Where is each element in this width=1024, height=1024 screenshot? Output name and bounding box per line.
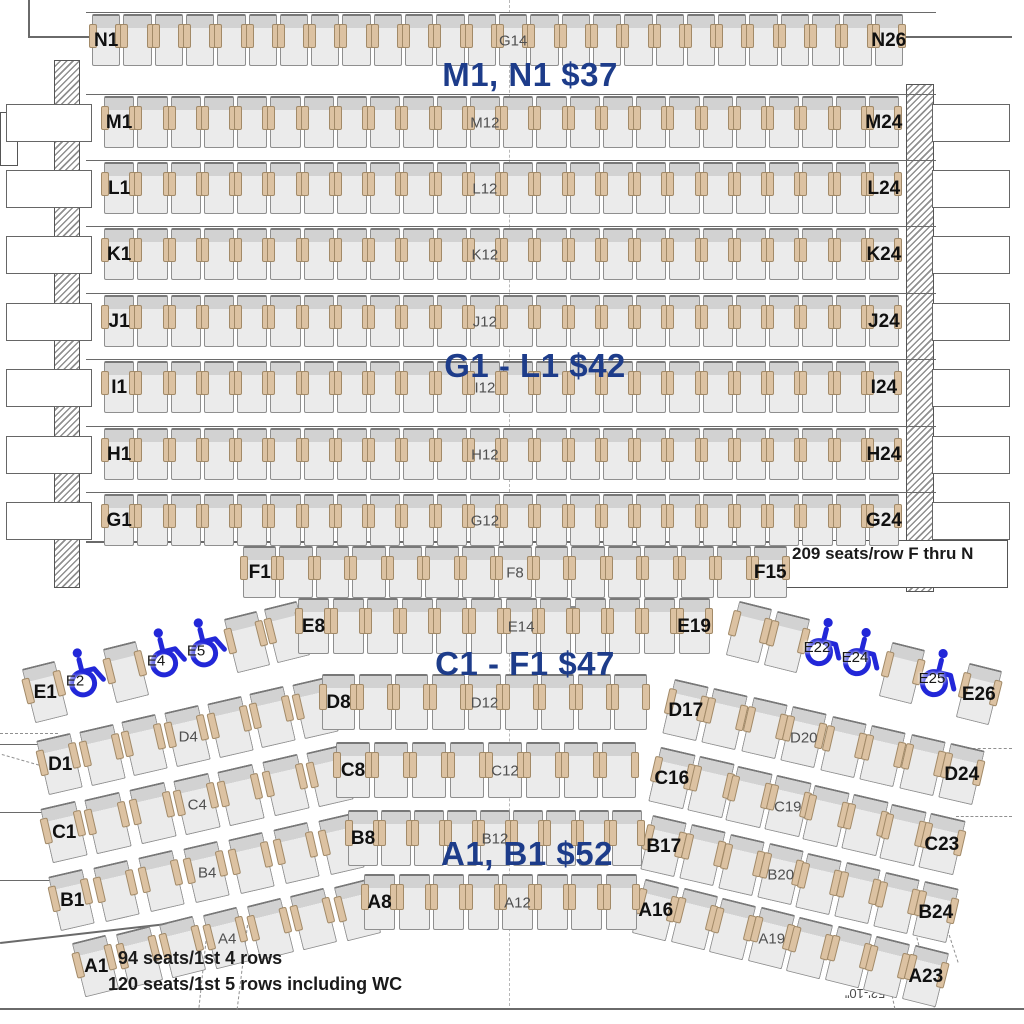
seat-G-17[interactable]: [636, 494, 666, 546]
seat-J-22[interactable]: [802, 295, 832, 347]
seat-C12[interactable]: C12: [488, 742, 522, 798]
seat-G-15[interactable]: [570, 494, 600, 546]
seat-L-9[interactable]: [370, 162, 400, 214]
seat-N-4[interactable]: [186, 14, 214, 66]
seat-M-23[interactable]: [836, 96, 866, 148]
seat-K-15[interactable]: [570, 228, 600, 280]
seat-I-23[interactable]: [836, 361, 866, 413]
seat-J-15[interactable]: [570, 295, 600, 347]
seat-K-3[interactable]: [171, 228, 201, 280]
seat-K-7[interactable]: [304, 228, 334, 280]
seat-M-14[interactable]: [536, 96, 566, 148]
seat-G1[interactable]: G1: [104, 494, 134, 546]
architecture-line: [86, 12, 936, 13]
seat-label: E26: [962, 683, 996, 705]
seat-N-18[interactable]: [624, 14, 652, 66]
wheelchair-space-label: E25: [918, 669, 945, 686]
seat-A-c-3[interactable]: [433, 874, 464, 930]
seat-label: I24: [871, 377, 897, 399]
seat-F-7[interactable]: [462, 546, 495, 598]
seat-B-c-3[interactable]: [414, 810, 444, 866]
seat-C-side-2[interactable]: [84, 791, 132, 854]
seat-G-9[interactable]: [370, 494, 400, 546]
seat-J-7[interactable]: [304, 295, 334, 347]
seat-C8[interactable]: C8: [336, 742, 370, 798]
seat-J-3[interactable]: [171, 295, 201, 347]
seat-H-15[interactable]: [570, 428, 600, 480]
seat-F-12[interactable]: [644, 546, 677, 598]
seat-K-21[interactable]: [769, 228, 799, 280]
seat-N-11[interactable]: [405, 14, 433, 66]
seat-H-10[interactable]: [403, 428, 433, 480]
seat-B-side-5[interactable]: [796, 852, 843, 914]
seat-B-c-2[interactable]: [381, 810, 411, 866]
seat-J-17[interactable]: [636, 295, 666, 347]
seat-label: A23: [908, 965, 943, 987]
seat-L-21[interactable]: [769, 162, 799, 214]
seat-K-20[interactable]: [736, 228, 766, 280]
seat-label: B17: [646, 835, 681, 857]
seat-M-6[interactable]: [270, 96, 300, 148]
seat-D-c-9[interactable]: [614, 674, 647, 730]
seat-J-11[interactable]: [437, 295, 467, 347]
seat-I-4[interactable]: [204, 361, 234, 413]
seat-N-19[interactable]: [656, 14, 684, 66]
seat-E19[interactable]: E19: [679, 598, 710, 654]
wheelchair-space-label: E2: [66, 672, 84, 689]
seat-D-c-2[interactable]: [359, 674, 392, 730]
seat-N-6[interactable]: [249, 14, 277, 66]
seat-K-4[interactable]: [204, 228, 234, 280]
seat-K-10[interactable]: [403, 228, 433, 280]
seat-K-5[interactable]: [237, 228, 267, 280]
seat-D24[interactable]: D24: [938, 743, 985, 805]
seat-K24[interactable]: K24: [869, 228, 899, 280]
note-120-seats: 120 seats/1st 5 rows including WC: [108, 974, 402, 995]
architecture-line: [86, 492, 936, 493]
seat-M-4[interactable]: [204, 96, 234, 148]
seat-M-19[interactable]: [703, 96, 733, 148]
seat-D-side-6[interactable]: [249, 686, 296, 748]
seat-D20[interactable]: D20: [780, 706, 827, 768]
seat-L1[interactable]: L1: [104, 162, 134, 214]
left-aisle-platform-row-G: [6, 502, 92, 540]
seat-B-side-2[interactable]: [93, 859, 140, 921]
seat-G-14[interactable]: [536, 494, 566, 546]
seat-B17[interactable]: B17: [640, 815, 687, 877]
seat-M-15[interactable]: [570, 96, 600, 148]
seat-K-2[interactable]: [137, 228, 167, 280]
seat-label: D24: [944, 763, 979, 785]
seat-A-side-6[interactable]: [290, 888, 338, 951]
seat-L-10[interactable]: [403, 162, 433, 214]
seat-H-17[interactable]: [636, 428, 666, 480]
price-label-rows-c-f: C1 - F1 $47: [435, 645, 615, 683]
seat-L-15[interactable]: [570, 162, 600, 214]
seat-F-9[interactable]: [535, 546, 568, 598]
seat-K-9[interactable]: [370, 228, 400, 280]
seat-F-11[interactable]: [608, 546, 641, 598]
seat-H-19[interactable]: [703, 428, 733, 480]
seat-L-4[interactable]: [204, 162, 234, 214]
seat-M-16[interactable]: [603, 96, 633, 148]
seat-label: C16: [654, 767, 689, 789]
seat-B1[interactable]: B1: [48, 869, 95, 931]
seat-D-side-7[interactable]: [899, 734, 946, 796]
seat-A8[interactable]: A8: [364, 874, 395, 930]
seat-M-21[interactable]: [769, 96, 799, 148]
seat-L-14[interactable]: [536, 162, 566, 214]
seat-K-16[interactable]: [603, 228, 633, 280]
seat-I-7[interactable]: [304, 361, 334, 413]
seat-M-5[interactable]: [237, 96, 267, 148]
seat-M-11[interactable]: [437, 96, 467, 148]
seat-K-11[interactable]: [437, 228, 467, 280]
seat-L-6[interactable]: [270, 162, 300, 214]
seat-D17[interactable]: D17: [662, 679, 709, 741]
seat-L-8[interactable]: [337, 162, 367, 214]
seat-B-c-9[interactable]: [612, 810, 642, 866]
architecture-line: [28, 0, 30, 38]
seat-K1[interactable]: K1: [104, 228, 134, 280]
seat-L-22[interactable]: [802, 162, 832, 214]
seat-J-21[interactable]: [769, 295, 799, 347]
seat-L24[interactable]: L24: [869, 162, 899, 214]
seat-J-14[interactable]: [536, 295, 566, 347]
seat-H-8[interactable]: [337, 428, 367, 480]
seat-E-c-3[interactable]: [367, 598, 398, 654]
seat-I-18[interactable]: [669, 361, 699, 413]
seat-H12[interactable]: H12: [470, 428, 500, 480]
seat-A-c-4[interactable]: [468, 874, 499, 930]
seat-J-8[interactable]: [337, 295, 367, 347]
seat-M-13[interactable]: [503, 96, 533, 148]
seat-B-side-6[interactable]: [273, 822, 320, 884]
seat-D4[interactable]: D4: [164, 705, 211, 767]
seat-H-23[interactable]: [836, 428, 866, 480]
seat-F15[interactable]: F15: [754, 546, 787, 598]
seat-G-2[interactable]: [137, 494, 167, 546]
seat-K12[interactable]: K12: [470, 228, 500, 280]
seat-I-8[interactable]: [337, 361, 367, 413]
seat-A-c-7[interactable]: [571, 874, 602, 930]
seat-J-2[interactable]: [137, 295, 167, 347]
seat-N-7[interactable]: [280, 14, 308, 66]
seat-F8[interactable]: F8: [498, 546, 531, 598]
seat-H-21[interactable]: [769, 428, 799, 480]
seat-G-10[interactable]: [403, 494, 433, 546]
seat-label: E14: [508, 618, 535, 635]
seat-label: N1: [94, 30, 118, 52]
seat-K-18[interactable]: [669, 228, 699, 280]
seat-H-6[interactable]: [270, 428, 300, 480]
left-aisle-platform-row-H: [6, 436, 92, 474]
seat-F-5[interactable]: [389, 546, 422, 598]
seat-M-3[interactable]: [171, 96, 201, 148]
seat-N-24[interactable]: [812, 14, 840, 66]
seat-G-20[interactable]: [736, 494, 766, 546]
seat-M-20[interactable]: [736, 96, 766, 148]
seat-K-14[interactable]: [536, 228, 566, 280]
seat-B24[interactable]: B24: [912, 881, 959, 943]
seat-C-c-3[interactable]: [412, 742, 446, 798]
seat-G-18[interactable]: [669, 494, 699, 546]
seat-label: C1: [52, 821, 76, 843]
seat-N-23[interactable]: [781, 14, 809, 66]
seat-J-20[interactable]: [736, 295, 766, 347]
seat-D-side-3[interactable]: [121, 714, 168, 776]
seat-L-11[interactable]: [437, 162, 467, 214]
seat-L-2[interactable]: [137, 162, 167, 214]
seat-J-5[interactable]: [237, 295, 267, 347]
seat-L-17[interactable]: [636, 162, 666, 214]
seat-label: G24: [866, 510, 902, 532]
seat-B-side-3[interactable]: [138, 850, 185, 912]
seat-label: J1: [109, 311, 130, 333]
seat-E8[interactable]: E8: [298, 598, 329, 654]
seat-I-10[interactable]: [403, 361, 433, 413]
seat-D-c-3[interactable]: [395, 674, 428, 730]
seat-N-9[interactable]: [342, 14, 370, 66]
seat-M-10[interactable]: [403, 96, 433, 148]
seat-N-20[interactable]: [687, 14, 715, 66]
seat-J-19[interactable]: [703, 295, 733, 347]
seat-G-6[interactable]: [270, 494, 300, 546]
seat-J-18[interactable]: [669, 295, 699, 347]
seat-J-10[interactable]: [403, 295, 433, 347]
seat-M-9[interactable]: [370, 96, 400, 148]
seat-E-c-2[interactable]: [333, 598, 364, 654]
seat-L-5[interactable]: [237, 162, 267, 214]
seat-I-9[interactable]: [370, 361, 400, 413]
seat-G12[interactable]: G12: [470, 494, 500, 546]
seat-label: D20: [790, 729, 818, 746]
seat-G24[interactable]: G24: [869, 494, 899, 546]
seat-K-23[interactable]: [836, 228, 866, 280]
seat-F-4[interactable]: [352, 546, 385, 598]
seat-N1[interactable]: N1: [92, 14, 120, 66]
seat-N-8[interactable]: [311, 14, 339, 66]
seat-label: B24: [918, 901, 953, 923]
seat-F-3[interactable]: [316, 546, 349, 598]
seat-B-side-3[interactable]: [718, 834, 765, 896]
seat-A23[interactable]: A23: [902, 945, 950, 1008]
seat-N-22[interactable]: [749, 14, 777, 66]
seat-C-c-4[interactable]: [450, 742, 484, 798]
seat-D-side-2[interactable]: [702, 688, 749, 750]
seat-J-4[interactable]: [204, 295, 234, 347]
seat-L-7[interactable]: [304, 162, 334, 214]
seat-G-8[interactable]: [337, 494, 367, 546]
seat-I-6[interactable]: [270, 361, 300, 413]
seat-H-22[interactable]: [802, 428, 832, 480]
seat-L-3[interactable]: [171, 162, 201, 214]
seat-K-19[interactable]: [703, 228, 733, 280]
seat-I-19[interactable]: [703, 361, 733, 413]
seat-J1[interactable]: J1: [104, 295, 134, 347]
seat-label: C8: [341, 760, 365, 782]
seat-J-13[interactable]: [503, 295, 533, 347]
seat-C4[interactable]: C4: [173, 773, 221, 836]
seat-B-side-2[interactable]: [679, 824, 726, 886]
seat-J-9[interactable]: [370, 295, 400, 347]
seat-B4[interactable]: B4: [183, 841, 230, 903]
left-aisle-platform-row-I: [6, 369, 92, 407]
seat-label: L1: [108, 178, 130, 200]
seat-G-19[interactable]: [703, 494, 733, 546]
seat-M-2[interactable]: [137, 96, 167, 148]
seat-A-c-8[interactable]: [606, 874, 637, 930]
seat-B-side-5[interactable]: [228, 831, 275, 893]
seat-D8[interactable]: D8: [322, 674, 355, 730]
seat-M-8[interactable]: [337, 96, 367, 148]
seat-L-16[interactable]: [603, 162, 633, 214]
seat-H1[interactable]: H1: [104, 428, 134, 480]
seat-A-c-6[interactable]: [537, 874, 568, 930]
seat-G-5[interactable]: [237, 494, 267, 546]
seat-D-side-2[interactable]: [79, 723, 126, 785]
seat-H-5[interactable]: [237, 428, 267, 480]
seat-C-c-7[interactable]: [564, 742, 598, 798]
seat-H-9[interactable]: [370, 428, 400, 480]
seat-J-6[interactable]: [270, 295, 300, 347]
seat-C-c-8[interactable]: [602, 742, 636, 798]
seat-label: B20: [767, 866, 794, 883]
seat-M-17[interactable]: [636, 96, 666, 148]
seat-I-17[interactable]: [636, 361, 666, 413]
seat-label: I1: [111, 377, 127, 399]
seat-H-18[interactable]: [669, 428, 699, 480]
seat-G-11[interactable]: [437, 494, 467, 546]
seat-C-side-5[interactable]: [217, 763, 265, 826]
seat-N-5[interactable]: [217, 14, 245, 66]
seat-H-2[interactable]: [137, 428, 167, 480]
seat-I-3[interactable]: [171, 361, 201, 413]
seat-J24[interactable]: J24: [869, 295, 899, 347]
seat-D-side-3[interactable]: [741, 697, 788, 759]
seat-C-c-6[interactable]: [526, 742, 560, 798]
seat-B-side-6[interactable]: [834, 862, 881, 924]
seat-G-22[interactable]: [802, 494, 832, 546]
seat-C-side-6[interactable]: [262, 754, 310, 817]
seat-H-13[interactable]: [503, 428, 533, 480]
seat-E-c-4[interactable]: [402, 598, 433, 654]
seat-H-7[interactable]: [304, 428, 334, 480]
seat-G-21[interactable]: [769, 494, 799, 546]
seat-K-22[interactable]: [802, 228, 832, 280]
seat-M1[interactable]: M1: [104, 96, 134, 148]
seat-I1[interactable]: I1: [104, 361, 134, 413]
seat-L-19[interactable]: [703, 162, 733, 214]
seat-D1[interactable]: D1: [36, 733, 83, 795]
seat-B-side-7[interactable]: [873, 871, 920, 933]
seat-K-8[interactable]: [337, 228, 367, 280]
seat-L-20[interactable]: [736, 162, 766, 214]
seat-J-16[interactable]: [603, 295, 633, 347]
seat-H-4[interactable]: [204, 428, 234, 480]
seat-J12[interactable]: J12: [470, 295, 500, 347]
seat-I-22[interactable]: [802, 361, 832, 413]
seat-I-21[interactable]: [769, 361, 799, 413]
seat-G-13[interactable]: [503, 494, 533, 546]
seat-D-side-5[interactable]: [820, 715, 867, 777]
seat-N-2[interactable]: [123, 14, 151, 66]
seat-label: L24: [868, 178, 901, 200]
seat-H-11[interactable]: [437, 428, 467, 480]
seat-F-2[interactable]: [279, 546, 312, 598]
seat-M-7[interactable]: [304, 96, 334, 148]
seat-H-14[interactable]: [536, 428, 566, 480]
seat-C-c-2[interactable]: [374, 742, 408, 798]
seat-M-18[interactable]: [669, 96, 699, 148]
seat-label: H24: [866, 444, 901, 466]
seat-C23[interactable]: C23: [918, 813, 966, 876]
seat-L-23[interactable]: [836, 162, 866, 214]
seat-L-18[interactable]: [669, 162, 699, 214]
seat-G-3[interactable]: [171, 494, 201, 546]
architecture-line: [0, 880, 54, 881]
seat-label: G12: [471, 512, 499, 529]
seat-H-20[interactable]: [736, 428, 766, 480]
seat-A-c-2[interactable]: [399, 874, 430, 930]
seat-M-22[interactable]: [802, 96, 832, 148]
seat-L-13[interactable]: [503, 162, 533, 214]
seat-C-side-3[interactable]: [129, 782, 177, 845]
seat-E-c-11[interactable]: [644, 598, 675, 654]
seat-M12[interactable]: M12: [470, 96, 500, 148]
seat-G-16[interactable]: [603, 494, 633, 546]
seat-K-6[interactable]: [270, 228, 300, 280]
seat-K-17[interactable]: [636, 228, 666, 280]
seat-L12[interactable]: L12: [470, 162, 500, 214]
seat-F-6[interactable]: [425, 546, 458, 598]
seat-I24[interactable]: I24: [869, 361, 899, 413]
seat-label: M1: [106, 112, 132, 134]
architecture-line: [0, 1008, 1024, 1010]
seat-F1[interactable]: F1: [243, 546, 276, 598]
seat-N26[interactable]: N26: [875, 14, 903, 66]
seat-D-side-6[interactable]: [859, 724, 906, 786]
seat-label: A12: [504, 894, 531, 911]
seat-N-3[interactable]: [155, 14, 183, 66]
right-aisle-platform-row-J: [932, 303, 1010, 341]
seat-F-10[interactable]: [571, 546, 604, 598]
seat-B8[interactable]: B8: [348, 810, 378, 866]
seat-G-7[interactable]: [304, 494, 334, 546]
seat-D-side-5[interactable]: [207, 695, 254, 757]
seat-F-14[interactable]: [717, 546, 750, 598]
seat-label: G14: [499, 32, 527, 49]
seat-N-21[interactable]: [718, 14, 746, 66]
seat-J-23[interactable]: [836, 295, 866, 347]
seat-N-25[interactable]: [843, 14, 871, 66]
seat-I-20[interactable]: [736, 361, 766, 413]
seat-K-13[interactable]: [503, 228, 533, 280]
seat-F-13[interactable]: [681, 546, 714, 598]
seat-C1[interactable]: C1: [40, 801, 88, 864]
seat-G-4[interactable]: [204, 494, 234, 546]
seat-I-5[interactable]: [237, 361, 267, 413]
seat-A12[interactable]: A12: [502, 874, 533, 930]
seat-H24[interactable]: H24: [869, 428, 899, 480]
seat-B20[interactable]: B20: [757, 843, 804, 905]
seat-M24[interactable]: M24: [869, 96, 899, 148]
seat-G-23[interactable]: [836, 494, 866, 546]
seat-H-3[interactable]: [171, 428, 201, 480]
seat-H-16[interactable]: [603, 428, 633, 480]
seat-I-2[interactable]: [137, 361, 167, 413]
seat-N-10[interactable]: [374, 14, 402, 66]
